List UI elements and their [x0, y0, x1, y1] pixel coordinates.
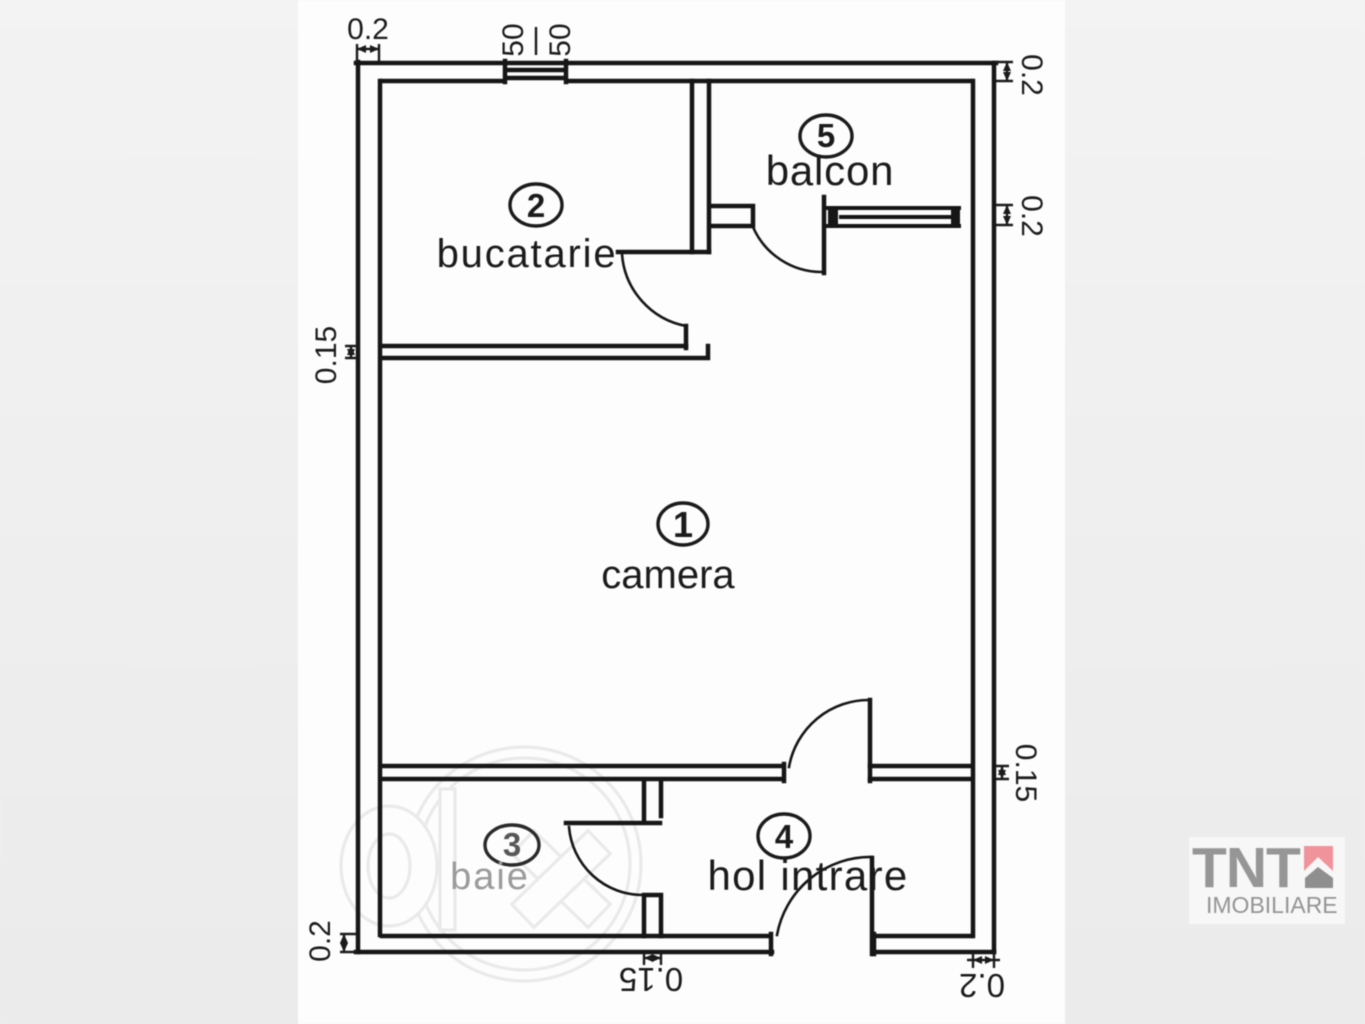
svg-text:TNT: TNT: [1192, 836, 1301, 900]
svg-text:0.2: 0.2: [304, 920, 337, 962]
svg-text:hol intrare: hol intrare: [707, 852, 908, 899]
svg-text:IMOBILIARE: IMOBILIARE: [1206, 892, 1338, 918]
svg-text:0.2: 0.2: [959, 967, 1005, 1004]
svg-text:balcon: balcon: [766, 147, 895, 194]
svg-text:baie: baie: [450, 856, 530, 898]
svg-text:4: 4: [775, 818, 794, 855]
svg-text:0.2: 0.2: [1015, 195, 1048, 237]
svg-text:bucatarie: bucatarie: [437, 232, 618, 276]
svg-text:0.15: 0.15: [310, 326, 343, 384]
svg-text:50: 50: [544, 23, 577, 56]
svg-text:camera: camera: [601, 553, 735, 597]
svg-text:1: 1: [673, 504, 693, 545]
svg-text:0.15: 0.15: [1009, 744, 1042, 802]
svg-text:2: 2: [527, 187, 545, 224]
svg-text:0.2: 0.2: [347, 13, 389, 46]
svg-text:0.2: 0.2: [1015, 54, 1048, 96]
svg-text:50: 50: [497, 23, 530, 56]
svg-text:0.15: 0.15: [619, 961, 683, 998]
